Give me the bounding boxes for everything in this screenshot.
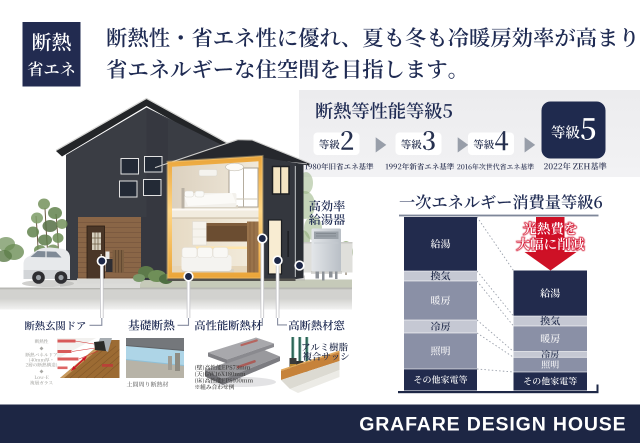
svg-text:GRAFARE DESIGN HOUSE: GRAFARE DESIGN HOUSE bbox=[359, 414, 626, 436]
